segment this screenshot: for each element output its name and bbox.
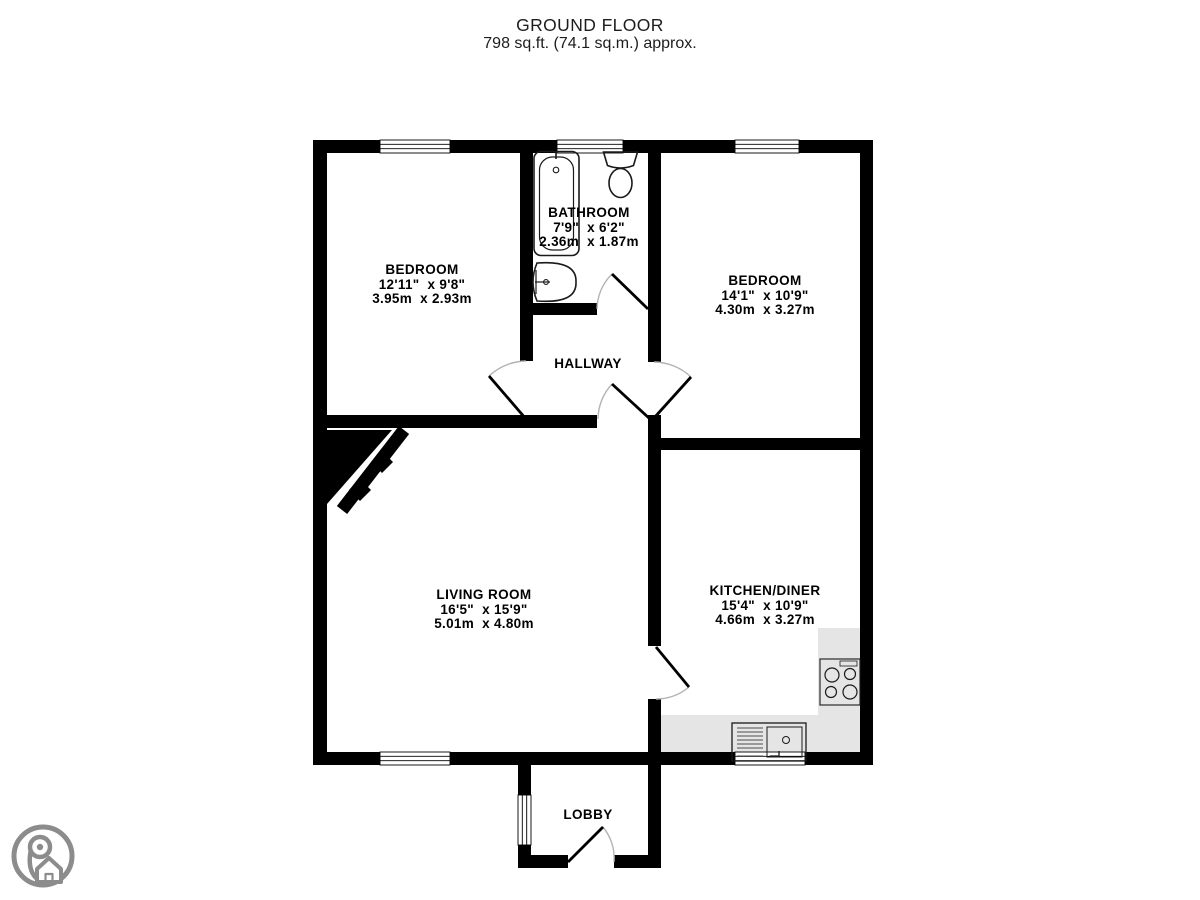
room-label-hallway: HALLWAY xyxy=(508,357,668,372)
pedestal-sink-icon xyxy=(533,263,576,302)
room-dim-imperial: 7'9" x 6'2" xyxy=(509,221,669,236)
worktop-counter xyxy=(661,628,860,752)
room-label-kitchen-diner: KITCHEN/DINER 15'4" x 10'9" 4.66m x 3.27… xyxy=(665,584,865,628)
fireplace-icon xyxy=(327,430,404,510)
room-dim-imperial: 12'11" x 9'8" xyxy=(322,278,522,293)
room-dim-imperial: 14'1" x 10'9" xyxy=(665,289,865,304)
door-leaf-kitchen xyxy=(656,647,689,687)
map-pin-house-logo xyxy=(14,827,72,885)
floor-title-area: 798 sq.ft. (74.1 sq.m.) approx. xyxy=(340,35,840,53)
room-label-bathroom: BATHROOM 7'9" x 6'2" 2.36m x 1.87m xyxy=(509,206,669,250)
room-name: BEDROOM xyxy=(665,274,865,289)
room-dim-imperial: 16'5" x 15'9" xyxy=(384,603,584,618)
room-name: LIVING ROOM xyxy=(384,588,584,603)
room-label-bedroom-2: BEDROOM 14'1" x 10'9" 4.30m x 3.27m xyxy=(665,274,865,318)
door-leaf-bedroom-1 xyxy=(489,376,526,419)
door-leaf-lobby-entrance xyxy=(568,827,603,862)
room-dim-metric: 4.30m x 3.27m xyxy=(665,303,865,318)
room-dim-metric: 3.95m x 2.93m xyxy=(322,292,522,307)
window-icon xyxy=(380,752,450,765)
window-icon xyxy=(735,752,805,765)
room-label-lobby: LOBBY xyxy=(528,808,648,823)
room-dim-metric: 4.66m x 3.27m xyxy=(665,613,865,628)
toilet-icon xyxy=(604,152,638,198)
room-name: KITCHEN/DINER xyxy=(665,584,865,599)
room-label-bedroom-1: BEDROOM 12'11" x 9'8" 3.95m x 2.93m xyxy=(322,263,522,307)
door-leaf-bedroom-2 xyxy=(654,377,691,418)
room-dim-metric: 2.36m x 1.87m xyxy=(509,235,669,250)
window-icon xyxy=(380,140,450,153)
room-dim-imperial: 15'4" x 10'9" xyxy=(665,599,865,614)
room-label-living-room: LIVING ROOM 16'5" x 15'9" 5.01m x 4.80m xyxy=(384,588,584,632)
floorplan-drawing xyxy=(0,0,1200,900)
room-name: BEDROOM xyxy=(322,263,522,278)
room-name: HALLWAY xyxy=(508,357,668,372)
room-name: LOBBY xyxy=(528,808,648,823)
door-leaf-hallway xyxy=(612,384,650,419)
room-name: BATHROOM xyxy=(509,206,669,221)
floorplan-page: { "title": { "line1": "GROUND FLOOR", "l… xyxy=(0,0,1200,900)
room-dim-metric: 5.01m x 4.80m xyxy=(384,617,584,632)
window-icon xyxy=(735,140,799,153)
floor-title-name: GROUND FLOOR xyxy=(340,16,840,35)
door-leaf-bathroom xyxy=(612,274,648,309)
floor-title: GROUND FLOOR 798 sq.ft. (74.1 sq.m.) app… xyxy=(340,16,840,53)
